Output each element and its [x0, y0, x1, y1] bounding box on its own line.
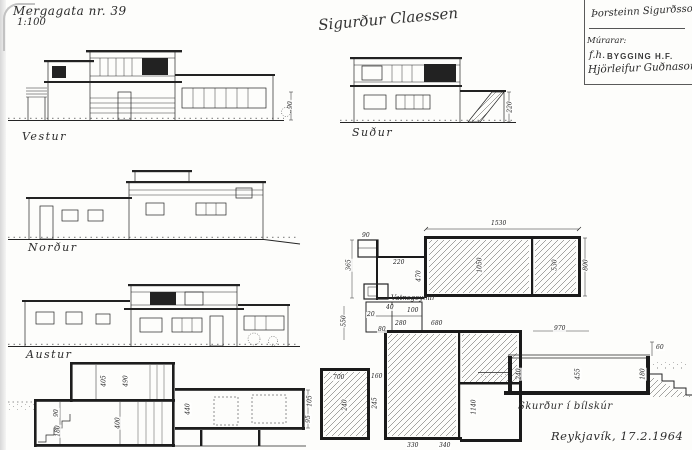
dim-label: 240: [517, 367, 523, 380]
dim-label: 90: [361, 233, 371, 239]
dim-label: 240: [343, 398, 349, 411]
dim-label: 550: [342, 314, 348, 327]
dim-label: 245: [373, 396, 379, 409]
dim-label: 455: [576, 367, 582, 380]
drawing-sheet: { "sheet": { "title": "Mergagata nr. 39"…: [0, 0, 692, 450]
dim-label: 970: [553, 326, 566, 332]
north-elevation-label: Norður: [28, 241, 77, 254]
dim-label: 1530: [490, 221, 507, 227]
dim-label: 90: [54, 408, 60, 418]
dim-label: 40: [385, 305, 395, 311]
dim-label: 470: [417, 269, 423, 282]
dim-label: 405: [102, 374, 108, 387]
dim-label: 280: [394, 321, 407, 327]
south-elevation-drawing: [340, 57, 516, 123]
dim-label: 440: [186, 402, 192, 415]
dim-label: 180: [56, 424, 62, 437]
dim-label: 220: [392, 260, 405, 266]
dim-label: 330: [406, 443, 419, 449]
dim-label: 60: [655, 345, 665, 351]
garage-section-label: Skurður í bílskúr: [518, 401, 613, 412]
dim-label: 1050: [478, 256, 484, 273]
stamp-fh: f.h.: [589, 50, 605, 61]
dim-label: 340: [438, 443, 451, 449]
dim-label: 80: [377, 327, 387, 333]
dim-label: 160: [370, 374, 383, 380]
signature-underline: [589, 28, 685, 29]
water-tank-label: Vatnsgeymir: [391, 294, 435, 302]
south-elevation-label: Suður: [352, 126, 393, 139]
dim-label: 365: [347, 258, 353, 271]
dim-label: 680: [430, 321, 443, 327]
dim-label: 105: [308, 394, 314, 407]
dim-label: 180: [641, 367, 647, 380]
stamp-box: Þorsteinn Sigurðsson Múrarar: f.h. BYGGI…: [584, 0, 692, 85]
stamp-role-line: Múrarar:: [587, 36, 626, 46]
dim-label: 490: [124, 374, 130, 387]
dim-label: 220: [508, 100, 514, 113]
dim-label: 100: [406, 308, 419, 314]
dim-label: 20: [366, 312, 376, 318]
dim-label: 400: [116, 416, 122, 429]
city-date: Reykjavík, 17.2.1964: [551, 429, 683, 443]
east-elevation-drawing: [8, 284, 300, 347]
dim-label: 800: [584, 258, 590, 271]
west-elevation-label: Vestur: [22, 130, 67, 143]
sheet-scale: 1:100: [17, 17, 46, 28]
stamp-company-name: BYGGING H.F.: [607, 52, 673, 61]
sheet-title: Mergagata nr. 39: [13, 4, 127, 18]
stamp-architect-name: Þorsteinn Sigurðsson: [591, 3, 692, 20]
west-elevation-drawing: [8, 50, 293, 121]
dim-label: 90: [288, 100, 294, 110]
stamp-signer-signature: Hjörleifur Guðnason: [588, 60, 692, 76]
dim-label: 1140: [472, 398, 478, 415]
dim-label: 530: [553, 258, 559, 271]
cross-sections-drawing: [8, 362, 310, 447]
dim-label: 95: [306, 414, 312, 424]
north-elevation-drawing: [8, 170, 300, 244]
dim-label: 700: [332, 375, 345, 381]
east-elevation-label: Austur: [26, 348, 72, 361]
